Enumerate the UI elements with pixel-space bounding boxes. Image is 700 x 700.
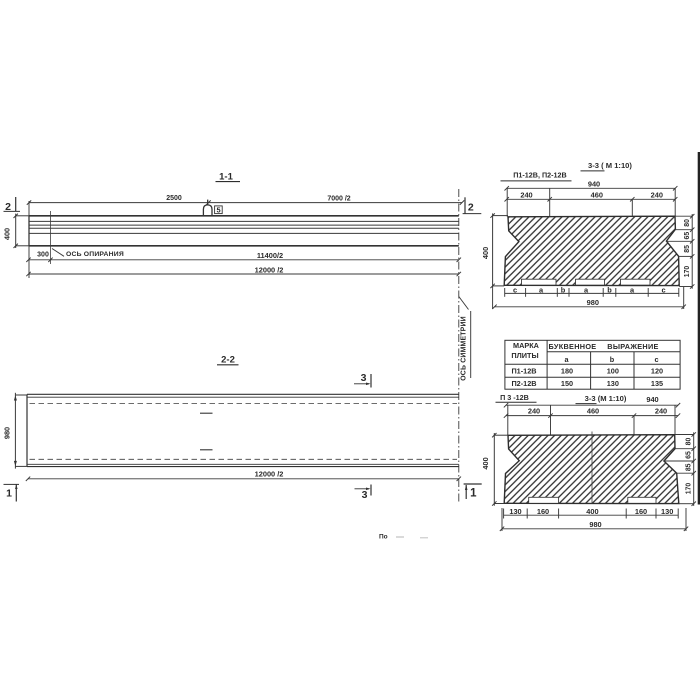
svg-text:11400/2: 11400/2 [257,251,283,260]
svg-text:80: 80 [685,438,692,446]
svg-text:65: 65 [684,232,691,240]
svg-text:160: 160 [635,507,647,516]
svg-text:3: 3 [362,489,368,501]
svg-text:400: 400 [3,228,12,240]
svg-text:2500: 2500 [166,195,182,202]
svg-text:980: 980 [3,427,12,439]
svg-text:ОСЬ СИММЕТРИИ: ОСЬ СИММЕТРИИ [461,316,468,381]
svg-text:170: 170 [685,483,692,495]
svg-text:300: 300 [37,252,49,259]
svg-text:1-1: 1-1 [219,172,233,183]
svg-text:150: 150 [561,379,573,388]
svg-text:130: 130 [661,507,673,516]
svg-text:МАРКА: МАРКА [513,341,540,350]
svg-text:400: 400 [481,247,490,259]
svg-text:b: b [610,355,615,364]
svg-text:80: 80 [684,219,691,227]
svg-text:980: 980 [589,520,601,529]
svg-text:400: 400 [481,457,490,469]
svg-text:П1-12В, П2-12В: П1-12В, П2-12В [513,171,566,180]
svg-text:2: 2 [468,201,474,213]
svg-text:2: 2 [5,201,11,213]
svg-text:П2-12В: П2-12В [511,379,536,388]
svg-text:5: 5 [216,205,220,214]
svg-text:b: b [561,285,566,294]
svg-text:130: 130 [509,507,521,516]
svg-text:100: 100 [607,367,619,376]
svg-text:130: 130 [607,379,619,388]
svg-text:240: 240 [520,190,532,199]
svg-text:12000 /2: 12000 /2 [255,265,284,274]
svg-text:160: 160 [537,507,549,516]
svg-text:400: 400 [586,507,598,516]
svg-text:БУКВЕННОЕ: БУКВЕННОЕ [549,342,597,351]
svg-text:170: 170 [684,266,691,278]
svg-text:12000 /2: 12000 /2 [255,469,284,478]
svg-text:ОСЬ ОПИРАНИЯ: ОСЬ ОПИРАНИЯ [66,251,124,258]
svg-text:b: b [607,285,612,294]
svg-text:980: 980 [587,298,599,307]
svg-text:940: 940 [646,395,658,404]
svg-text:c: c [654,355,658,364]
svg-text:П 3 -12В: П 3 -12В [500,393,529,402]
svg-text:3-3 (М 1:10): 3-3 (М 1:10) [585,394,627,403]
svg-text:135: 135 [651,379,663,388]
svg-text:240: 240 [528,407,540,416]
svg-text:ВЫРАЖЕНИЕ: ВЫРАЖЕНИЕ [607,342,658,351]
svg-text:c: c [661,285,665,294]
svg-text:П1-12В: П1-12В [511,367,536,376]
svg-text:3-3 ( М 1:10): 3-3 ( М 1:10) [588,161,632,170]
svg-text:7000 /2: 7000 /2 [327,196,350,203]
svg-text:1: 1 [470,488,477,500]
svg-text:240: 240 [651,190,663,199]
svg-text:1: 1 [6,488,12,500]
svg-text:120: 120 [651,367,663,376]
svg-text:3: 3 [361,372,367,384]
svg-text:180: 180 [561,367,573,376]
svg-text:По: По [379,534,388,541]
svg-text:460: 460 [587,407,599,416]
svg-text:85: 85 [685,463,692,471]
svg-text:65: 65 [685,451,692,459]
svg-text:ПЛИТЫ: ПЛИТЫ [511,351,538,360]
svg-text:85: 85 [684,245,691,253]
svg-text:a: a [564,355,569,364]
svg-text:c: c [513,285,517,294]
svg-text:940: 940 [588,180,600,189]
svg-text:2-2: 2-2 [221,354,235,365]
svg-text:460: 460 [591,190,603,199]
svg-text:240: 240 [655,407,667,416]
